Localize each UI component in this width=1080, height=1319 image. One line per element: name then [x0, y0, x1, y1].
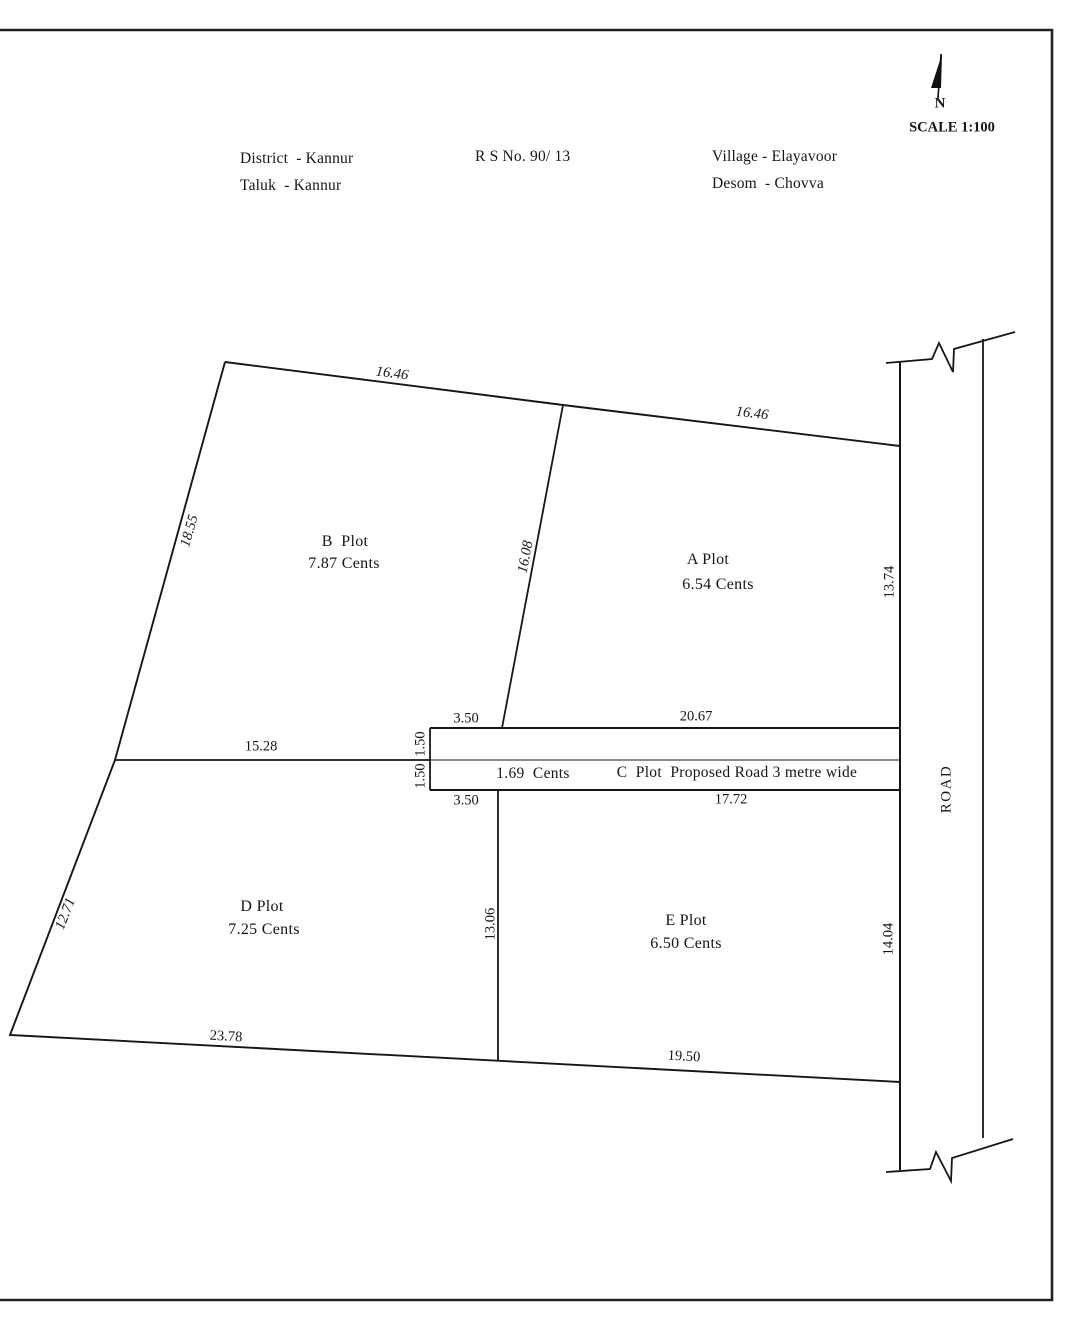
survey-sketch-page: District - Kannur Taluk - Kannur R S No.…: [0, 0, 1080, 1319]
desom-label: Desom - Chovva: [712, 175, 824, 193]
plot-e-area: 6.50 Cents: [650, 935, 721, 953]
road-label: ROAD: [939, 765, 956, 814]
rs-no-label: R S No. 90/ 13: [475, 148, 570, 166]
dimension-a-right: 13.74: [882, 566, 899, 599]
plot-d-name: D Plot: [240, 898, 283, 916]
north-label: N: [935, 96, 946, 113]
road-break-top: [886, 332, 1015, 372]
dimension-strip-bottom-left: 3.50: [453, 793, 478, 810]
dimension-d-bottom: 23.78: [209, 1028, 242, 1047]
plot-d-area: 7.25 Cents: [228, 921, 299, 939]
plot-b-name: B Plot: [322, 533, 369, 551]
dimension-a-top: 16.46: [735, 404, 769, 425]
road-break-bottom: [886, 1139, 1013, 1181]
dimension-strip-top-left: 3.50: [453, 711, 478, 728]
dimension-strip-top-right: 20.67: [680, 709, 713, 726]
dimension-strip-bottom-right: 17.72: [715, 792, 748, 809]
dimension-strip-upper-width: 1.50: [413, 731, 430, 756]
plot-c-area: 1.69 Cents: [496, 765, 569, 783]
survey-drawing: [0, 0, 1080, 1319]
dimension-strip-lower-width: 1.50: [413, 763, 430, 788]
plot-e-name: E Plot: [665, 912, 706, 930]
dimension-bd-boundary: 15.28: [245, 739, 278, 756]
plot-a-area: 6.54 Cents: [682, 576, 753, 594]
district-label: District - Kannur: [240, 150, 353, 168]
dimension-e-right: 14.04: [881, 923, 898, 956]
plot-c-description: C Plot Proposed Road 3 metre wide: [617, 764, 857, 782]
boundary-top-edges: [225, 362, 900, 446]
plot-a-name: A Plot: [687, 551, 729, 569]
scale-label: SCALE 1:100: [909, 120, 995, 137]
village-label: Village - Elayavoor: [712, 148, 837, 166]
dimension-e-bottom: 19.50: [667, 1048, 700, 1067]
page-border: [0, 30, 1052, 1300]
dimension-de-divider: 13.06: [483, 908, 500, 941]
plot-b-area: 7.87 Cents: [308, 555, 379, 573]
taluk-label: Taluk - Kannur: [240, 177, 341, 195]
